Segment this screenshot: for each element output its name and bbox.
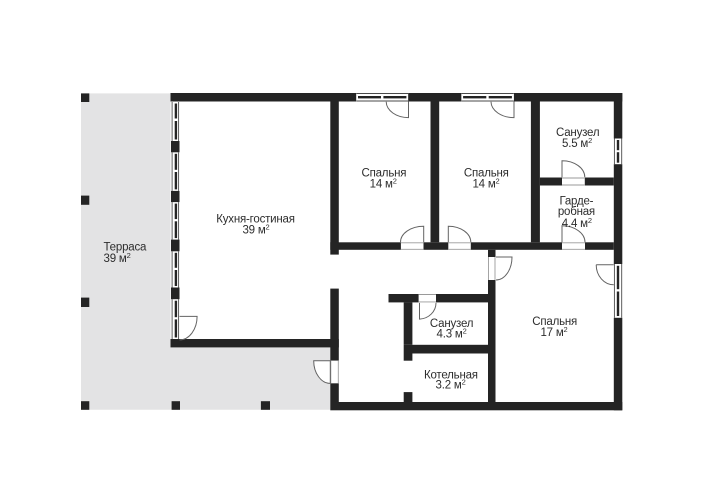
svg-text:Кухня-гостиная: Кухня-гостиная [216,213,295,225]
svg-text:17 м2: 17 м2 [540,325,567,339]
svg-text:3.2 м2: 3.2 м2 [436,378,466,392]
svg-text:39 м2: 39 м2 [104,251,131,265]
svg-text:4.3 м2: 4.3 м2 [437,326,467,340]
svg-text:39 м2: 39 м2 [242,223,269,237]
svg-text:4.4 м2: 4.4 м2 [562,216,592,230]
svg-text:5.5 м2: 5.5 м2 [562,136,592,150]
svg-text:14 м2: 14 м2 [472,176,499,190]
svg-text:Терраса: Терраса [104,241,148,253]
svg-text:Санузел: Санузел [556,127,599,139]
svg-text:14 м2: 14 м2 [370,176,397,190]
